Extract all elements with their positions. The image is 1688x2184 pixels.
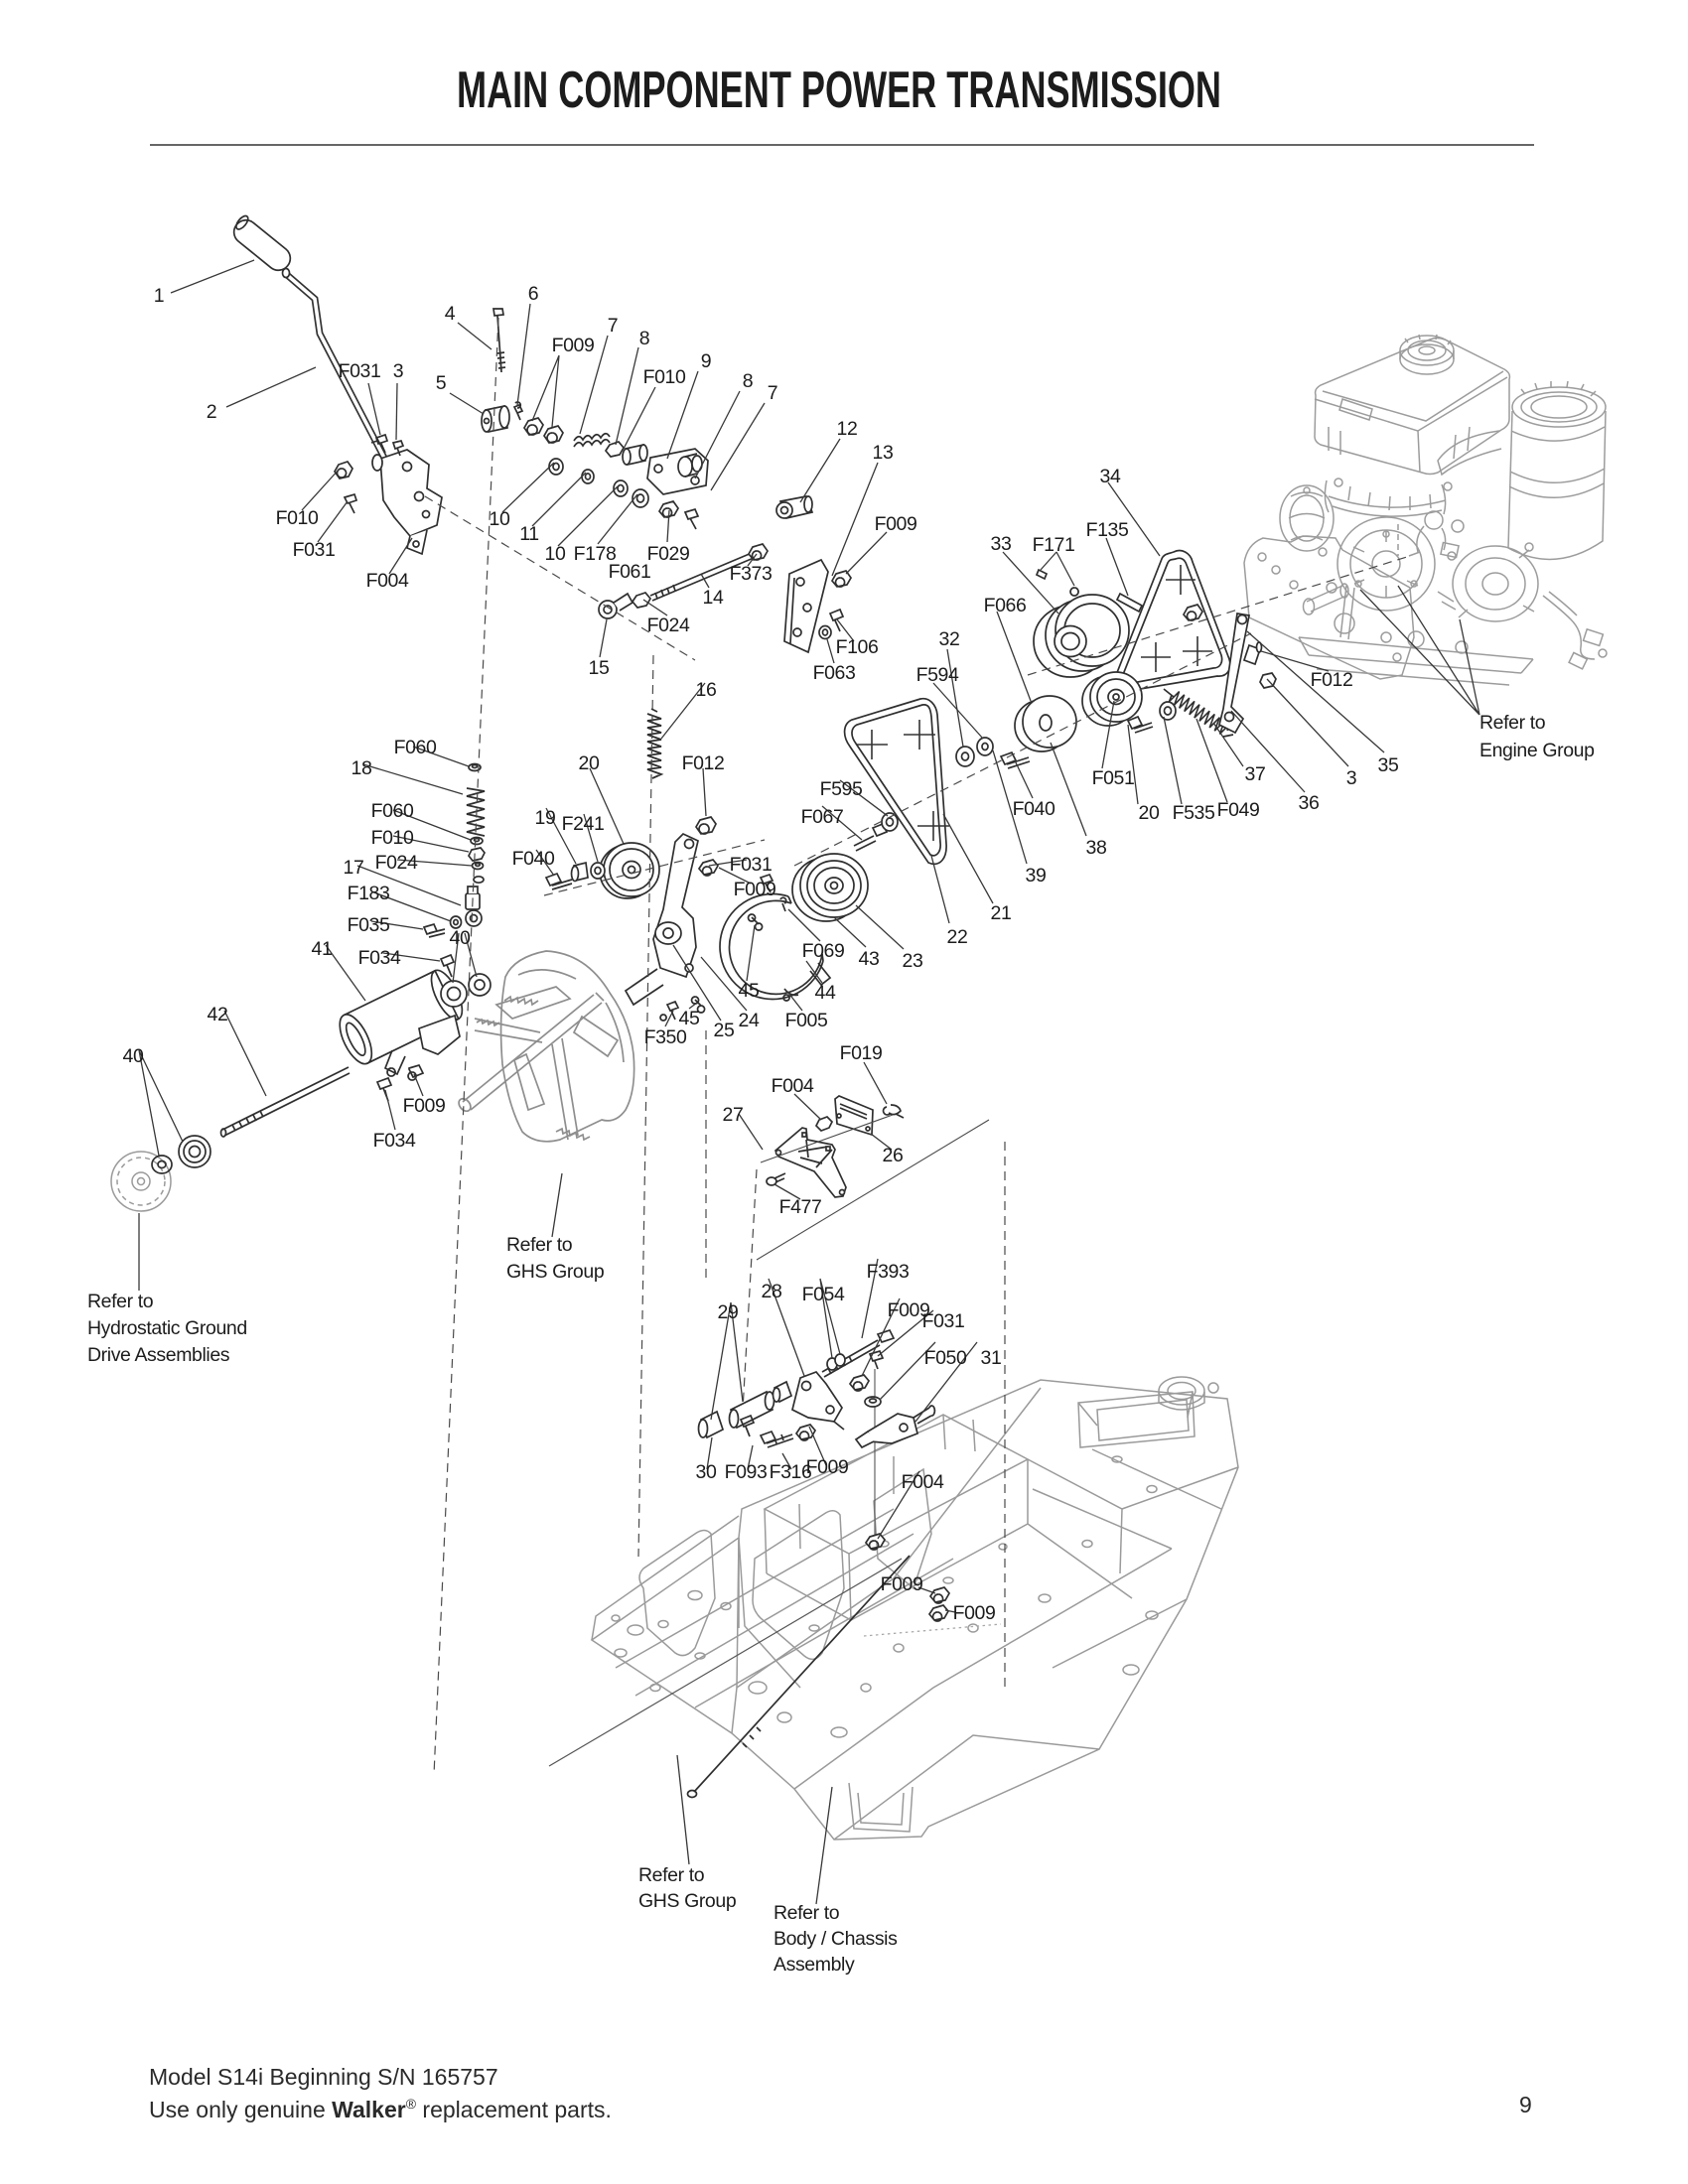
svg-text:40: 40 — [450, 927, 471, 949]
svg-text:20: 20 — [579, 752, 600, 774]
svg-text:8: 8 — [639, 328, 649, 349]
svg-text:F031: F031 — [293, 539, 336, 561]
svg-text:33: 33 — [991, 533, 1012, 555]
svg-text:5: 5 — [436, 372, 447, 394]
svg-text:F031: F031 — [730, 854, 773, 876]
svg-text:Hydrostatic Ground: Hydrostatic Ground — [87, 1317, 247, 1339]
svg-text:41: 41 — [312, 938, 333, 960]
svg-text:40: 40 — [123, 1045, 144, 1067]
svg-text:35: 35 — [1378, 754, 1399, 776]
svg-text:38: 38 — [1086, 837, 1107, 859]
svg-text:F066: F066 — [984, 595, 1027, 616]
svg-text:GHS Group: GHS Group — [506, 1261, 605, 1283]
svg-text:4: 4 — [445, 303, 456, 325]
svg-text:F050: F050 — [924, 1347, 967, 1369]
svg-text:7: 7 — [608, 315, 618, 337]
svg-text:F067: F067 — [801, 806, 844, 828]
svg-text:23: 23 — [903, 950, 923, 972]
svg-text:43: 43 — [859, 948, 880, 970]
svg-text:F005: F005 — [785, 1010, 828, 1031]
svg-text:F010: F010 — [371, 827, 414, 849]
svg-text:F009: F009 — [552, 335, 595, 356]
svg-text:GHS Group: GHS Group — [638, 1890, 737, 1912]
svg-text:Refer to: Refer to — [1479, 712, 1546, 734]
svg-text:F063: F063 — [813, 662, 856, 684]
svg-text:37: 37 — [1245, 763, 1266, 785]
svg-text:2: 2 — [207, 401, 216, 423]
svg-text:3: 3 — [393, 360, 403, 382]
svg-text:45: 45 — [679, 1008, 700, 1029]
svg-text:20: 20 — [1139, 802, 1160, 824]
svg-text:F350: F350 — [644, 1026, 687, 1048]
svg-text:12: 12 — [837, 418, 858, 440]
svg-text:Drive Assemblies: Drive Assemblies — [87, 1344, 230, 1366]
svg-text:Model S14i Beginning S/N 16575: Model S14i Beginning S/N 165757 — [149, 2064, 498, 2090]
svg-text:F241: F241 — [562, 813, 605, 835]
svg-text:F171: F171 — [1033, 534, 1075, 556]
svg-text:F031: F031 — [922, 1310, 965, 1332]
svg-text:45: 45 — [739, 980, 760, 1002]
svg-text:10: 10 — [545, 543, 566, 565]
svg-text:F093: F093 — [725, 1461, 768, 1483]
svg-text:F535: F535 — [1173, 802, 1215, 824]
svg-text:Engine Group: Engine Group — [1479, 740, 1595, 761]
svg-text:F009: F009 — [403, 1095, 446, 1117]
svg-text:F061: F061 — [609, 561, 651, 583]
svg-text:7: 7 — [768, 382, 777, 404]
svg-text:8: 8 — [743, 370, 753, 392]
svg-text:44: 44 — [815, 982, 836, 1004]
svg-text:34: 34 — [1100, 466, 1121, 487]
svg-text:F010: F010 — [276, 507, 319, 529]
svg-text:F009: F009 — [881, 1573, 923, 1595]
svg-text:F034: F034 — [358, 947, 401, 969]
svg-text:18: 18 — [352, 757, 372, 779]
svg-text:F035: F035 — [348, 914, 390, 936]
svg-text:F373: F373 — [730, 563, 773, 585]
svg-text:39: 39 — [1026, 865, 1047, 887]
svg-text:Refer to: Refer to — [638, 1864, 705, 1886]
svg-text:22: 22 — [947, 926, 968, 948]
svg-text:F034: F034 — [373, 1130, 416, 1152]
svg-text:F024: F024 — [647, 614, 690, 636]
svg-text:27: 27 — [723, 1104, 744, 1126]
svg-text:30: 30 — [696, 1461, 717, 1483]
svg-text:F012: F012 — [682, 752, 725, 774]
svg-text:MAIN COMPONENT POWER TRANSMISS: MAIN COMPONENT POWER TRANSMISSION — [457, 62, 1221, 119]
svg-text:Refer to: Refer to — [87, 1291, 154, 1312]
svg-text:32: 32 — [939, 628, 960, 650]
svg-text:1: 1 — [154, 285, 164, 307]
svg-text:F029: F029 — [647, 543, 690, 565]
svg-text:28: 28 — [762, 1281, 782, 1302]
svg-text:9: 9 — [701, 350, 711, 372]
svg-text:31: 31 — [981, 1347, 1002, 1369]
svg-text:F004: F004 — [902, 1471, 944, 1493]
svg-text:F012: F012 — [1311, 669, 1353, 691]
svg-text:42: 42 — [208, 1004, 228, 1025]
svg-text:F135: F135 — [1086, 519, 1129, 541]
svg-text:17: 17 — [344, 857, 364, 879]
svg-text:F004: F004 — [772, 1075, 814, 1097]
svg-text:F009: F009 — [953, 1602, 996, 1624]
svg-text:F009: F009 — [734, 879, 776, 900]
svg-text:6: 6 — [528, 283, 538, 305]
svg-text:26: 26 — [883, 1145, 904, 1166]
svg-text:F060: F060 — [371, 800, 414, 822]
svg-text:F031: F031 — [339, 360, 381, 382]
svg-text:F009: F009 — [806, 1456, 849, 1478]
svg-text:Body / Chassis: Body / Chassis — [774, 1928, 898, 1950]
svg-text:19: 19 — [535, 807, 556, 829]
svg-text:F009: F009 — [875, 513, 917, 535]
svg-text:Refer to: Refer to — [506, 1234, 573, 1256]
svg-text:F004: F004 — [366, 570, 409, 592]
svg-text:Refer to: Refer to — [774, 1902, 840, 1924]
svg-text:13: 13 — [873, 442, 894, 464]
svg-text:F595: F595 — [820, 778, 863, 800]
svg-text:15: 15 — [589, 657, 610, 679]
svg-text:10: 10 — [490, 508, 510, 530]
svg-text:9: 9 — [1519, 2092, 1532, 2117]
svg-text:11: 11 — [519, 523, 538, 545]
svg-text:F183: F183 — [348, 883, 390, 904]
svg-text:F477: F477 — [779, 1196, 822, 1218]
svg-text:16: 16 — [696, 679, 717, 701]
svg-text:24: 24 — [739, 1010, 760, 1031]
svg-text:F069: F069 — [802, 940, 845, 962]
svg-text:Use only genuine Walker® repla: Use only genuine Walker® replacement par… — [149, 2096, 612, 2122]
svg-text:F594: F594 — [916, 664, 959, 686]
svg-text:29: 29 — [718, 1301, 739, 1323]
svg-text:F010: F010 — [643, 366, 686, 388]
svg-text:36: 36 — [1299, 792, 1320, 814]
svg-text:F040: F040 — [512, 848, 555, 870]
svg-text:Assembly: Assembly — [774, 1954, 855, 1976]
svg-text:25: 25 — [714, 1020, 735, 1041]
svg-text:F024: F024 — [375, 852, 418, 874]
svg-text:F051: F051 — [1092, 767, 1135, 789]
svg-text:3: 3 — [1346, 767, 1356, 789]
svg-text:F019: F019 — [840, 1042, 883, 1064]
svg-text:F060: F060 — [394, 737, 437, 758]
svg-text:14: 14 — [703, 587, 724, 609]
svg-text:21: 21 — [991, 902, 1012, 924]
svg-text:F106: F106 — [836, 636, 879, 658]
svg-text:F393: F393 — [867, 1261, 910, 1283]
svg-text:F049: F049 — [1217, 799, 1260, 821]
svg-text:F054: F054 — [802, 1284, 845, 1305]
svg-text:F040: F040 — [1013, 798, 1055, 820]
